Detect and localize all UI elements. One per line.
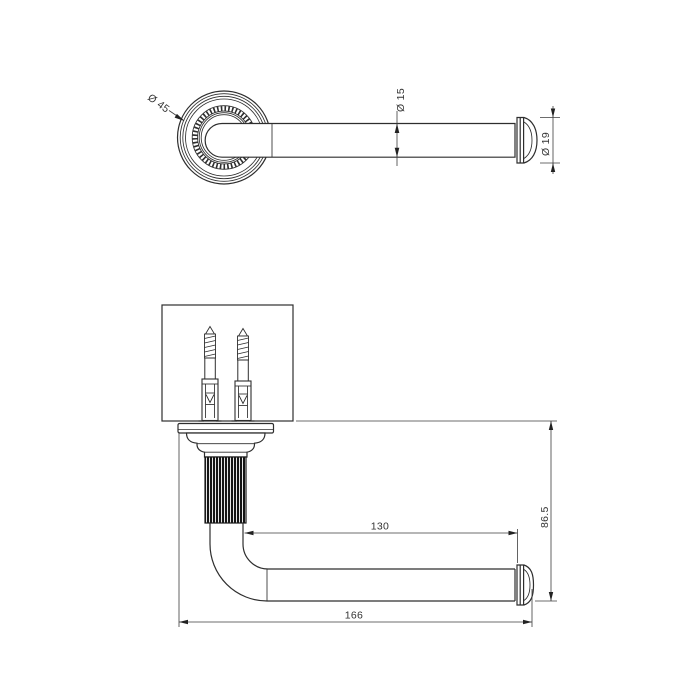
- drawing-svg: Ø 45 Ø 15 Ø 19: [0, 0, 700, 699]
- bar-diameter-label: Ø 15: [395, 88, 407, 112]
- front-view: Ø 45 Ø 15 Ø 19: [145, 88, 560, 184]
- wall-section-view: 130 86.5 166: [162, 305, 557, 627]
- mounting-flange: [178, 424, 274, 458]
- knurled-stem: [205, 457, 246, 523]
- arm-length-label: 130: [371, 521, 389, 533]
- end-cap-section: [517, 565, 534, 605]
- screw-left: [199, 327, 222, 422]
- screw-right: [232, 329, 255, 422]
- end-cap-front: [517, 118, 537, 164]
- wall-anchor-right: [235, 381, 251, 421]
- dimension-rosette-diameter: Ø 45: [145, 92, 184, 121]
- wall-anchor-left: [202, 379, 218, 421]
- dimension-arm-length: 130: [245, 521, 518, 564]
- cap-diameter-label: Ø 19: [540, 132, 552, 156]
- technical-drawing-page: Ø 45 Ø 15 Ø 19: [0, 0, 700, 699]
- rosette-diameter-label: Ø 45: [145, 92, 171, 116]
- overall-length-label: 166: [345, 610, 363, 622]
- dimension-cap-diameter: Ø 19: [540, 106, 560, 174]
- projection-label: 86.5: [539, 506, 551, 528]
- elbow-bar: [210, 523, 515, 601]
- wall-hatching: [162, 305, 293, 421]
- bar-tube: [205, 124, 515, 158]
